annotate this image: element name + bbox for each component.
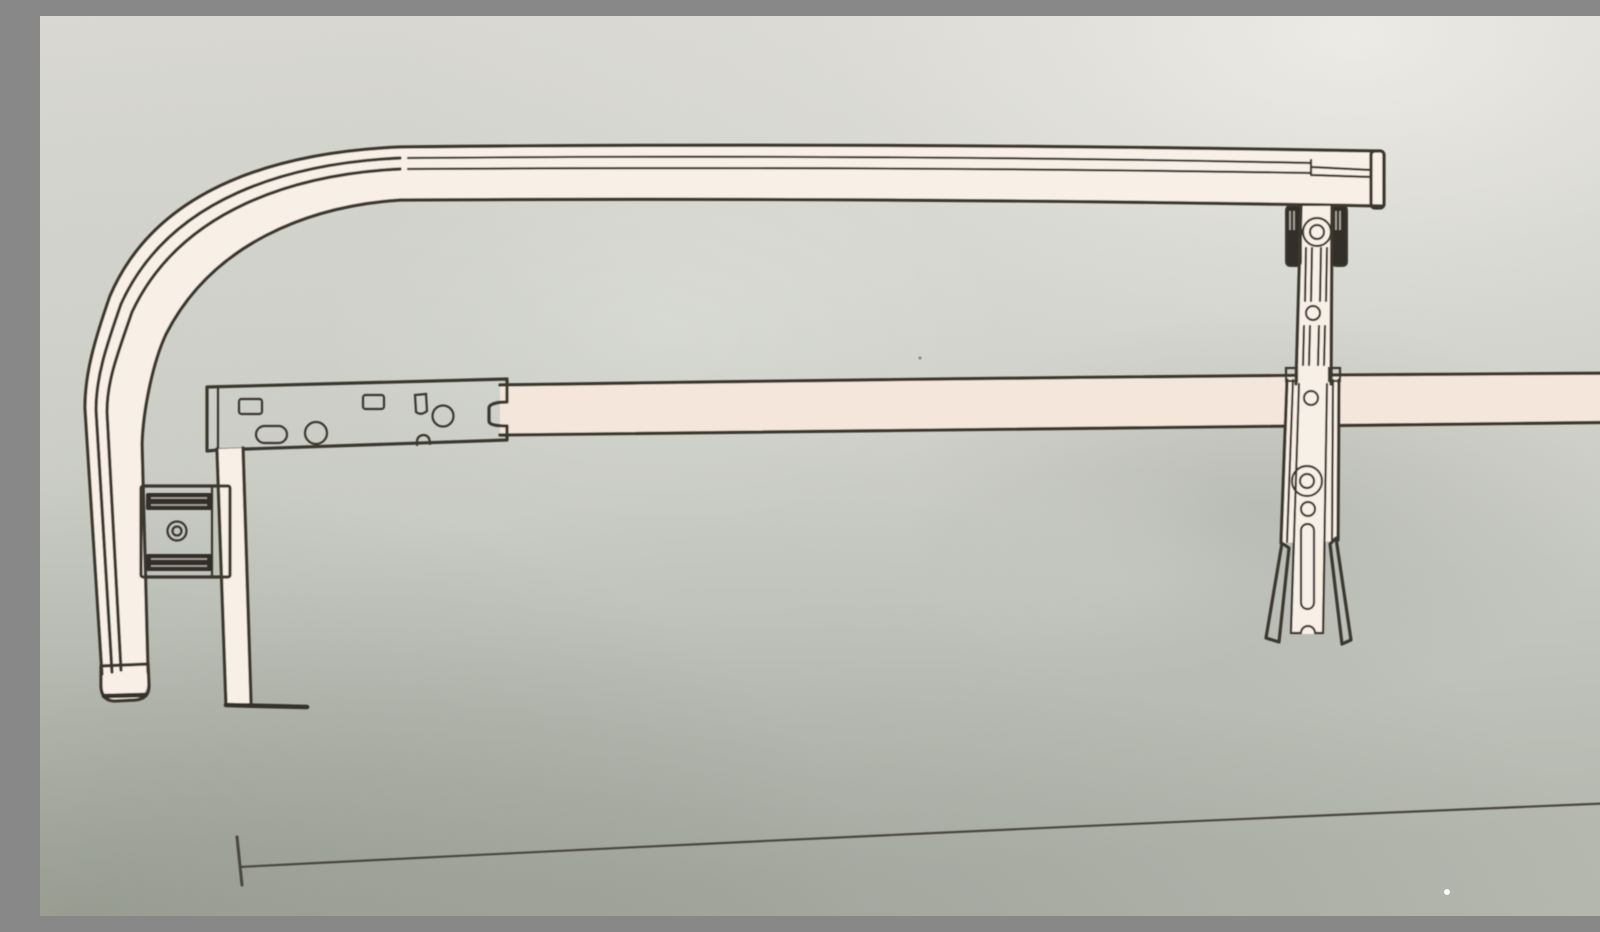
- tube-end-cap-bottom: [104, 695, 145, 696]
- bar-fill: [400, 145, 1382, 207]
- dust-speck: [1444, 889, 1450, 895]
- diagram-canvas: [40, 16, 1600, 916]
- dust-speck: [918, 356, 922, 360]
- clamp-pad-top: [146, 493, 212, 510]
- channel-right-edge: [1338, 380, 1339, 540]
- drop-bracket-foot: [226, 705, 307, 707]
- photographed-diagram: [40, 16, 1600, 916]
- clamp-pad-bottom: [146, 554, 212, 571]
- support-rail: [500, 373, 1600, 435]
